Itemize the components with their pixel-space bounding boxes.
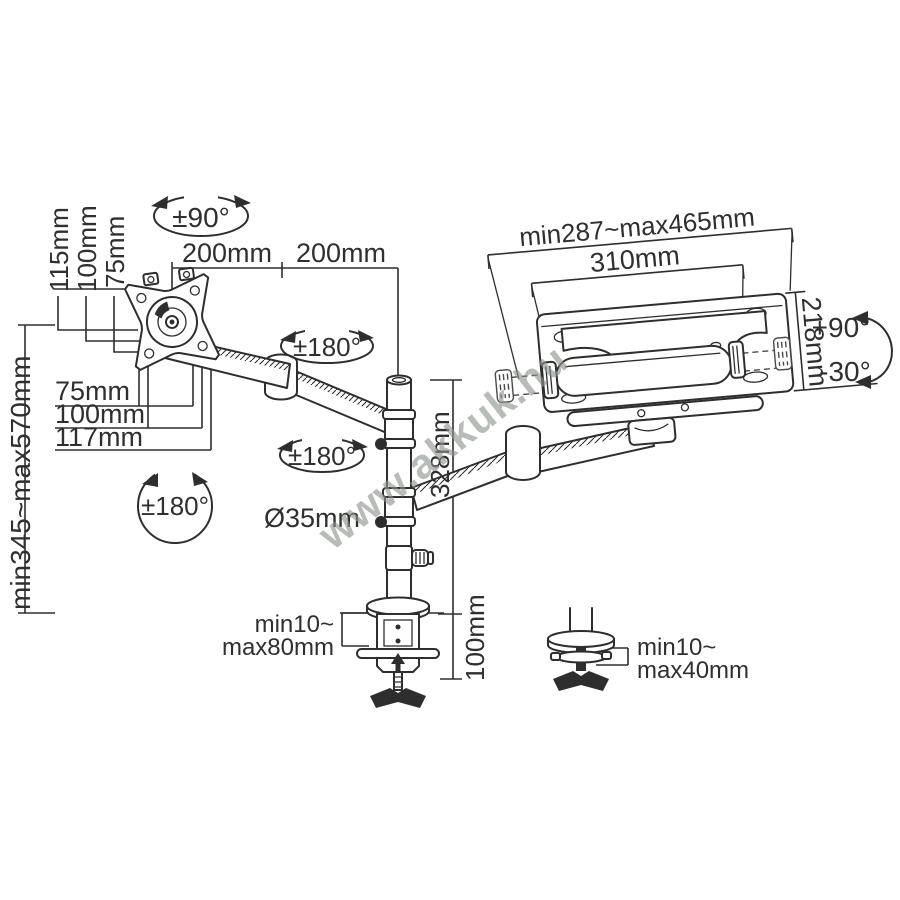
rotation-indicator-vesa: ±90° xyxy=(151,190,251,236)
label-height-range: min345~max570mm xyxy=(5,356,36,610)
label-swivel-base: ±180° xyxy=(141,491,209,521)
label-clamp-thickness-line2: max80mm xyxy=(222,634,334,661)
label-grommet-thickness-line2: max40mm xyxy=(637,657,749,684)
label-vesa-horizontal-117: 117mm xyxy=(55,422,143,452)
swivel-indicator-base: ±180° xyxy=(138,464,212,543)
grommet-mount xyxy=(548,608,614,691)
pole-height-adjuster-knob xyxy=(386,546,433,570)
label-tray-inner-width: 310mm xyxy=(589,240,681,278)
label-clamp-below-desk: 100mm xyxy=(460,594,490,681)
label-rotation-vesa: ±90° xyxy=(172,202,230,233)
label-arm-upper-segment1: 200mm xyxy=(182,238,272,268)
label-vesa-vertical-75: 75mm xyxy=(100,216,130,288)
label-vesa-vertical-115: 115mm xyxy=(44,207,74,292)
monitor-arm-dimension-diagram: min287~max465mm 310mm 218mm ±90° ±180° xyxy=(0,0,900,900)
label-tilt-up: +90° xyxy=(812,312,871,343)
swivel-indicator-upper: ±180° xyxy=(280,324,374,363)
label-vesa-vertical-100: 100mm xyxy=(72,205,102,292)
swivel-indicator-lower: ±180° xyxy=(277,433,368,472)
label-swivel-upper: ±180° xyxy=(293,332,361,362)
label-tilt-down: -30° xyxy=(819,356,871,387)
label-arm-upper-segment2: 200mm xyxy=(296,238,386,268)
desk-clamp xyxy=(357,598,439,709)
label-swivel-lower: ±180° xyxy=(288,441,356,471)
technical-drawing-page: min287~max465mm 310mm 218mm ±90° ±180° xyxy=(0,0,900,900)
